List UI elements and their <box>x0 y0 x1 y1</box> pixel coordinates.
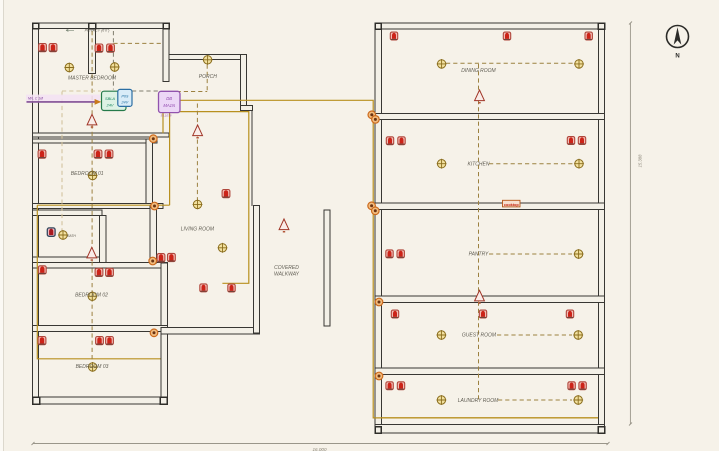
svg-text:LIVING ROOM: LIVING ROOM <box>181 227 215 233</box>
svg-text:DINING ROOM: DINING ROOM <box>461 68 496 74</box>
svg-text:24V: 24V <box>106 103 114 108</box>
svg-text:15.388: 15.388 <box>638 154 643 167</box>
svg-text:BATH: BATH <box>67 234 76 238</box>
svg-text:PRIVACY (6'0"): PRIVACY (6'0") <box>85 29 110 33</box>
svg-text:24V: 24V <box>120 100 128 105</box>
svg-text:16.000: 16.000 <box>312 447 326 451</box>
svg-text:COVERED: COVERED <box>274 265 299 271</box>
svg-text:KITCHEN: KITCHEN <box>468 162 490 168</box>
svg-text:GUEST ROOM: GUEST ROOM <box>462 333 497 339</box>
svg-text:BEDROOM 03: BEDROOM 03 <box>76 364 109 370</box>
svg-text:MA1N: MA1N <box>163 103 176 108</box>
svg-text:BEDROOM 02: BEDROOM 02 <box>75 293 108 299</box>
svg-text:cooktop: cooktop <box>504 203 519 207</box>
svg-text:MASTER BEDROOM: MASTER BEDROOM <box>68 76 117 82</box>
svg-text:P09: P09 <box>121 94 129 99</box>
svg-text:M/L C 1Ø: M/L C 1Ø <box>28 97 43 101</box>
svg-text:5.L1078: 5.L1078 <box>161 114 172 118</box>
svg-text:PANTRY: PANTRY <box>469 251 489 257</box>
svg-text:DB: DB <box>166 96 172 101</box>
svg-text:BEDROOM 01: BEDROOM 01 <box>71 171 104 177</box>
svg-text:WALKWAY: WALKWAY <box>274 272 300 278</box>
svg-text:SBLA: SBLA <box>105 96 115 101</box>
svg-text:N: N <box>675 54 679 60</box>
svg-text:PORCH: PORCH <box>199 74 217 80</box>
svg-text:LAUNDRY ROOM: LAUNDRY ROOM <box>458 398 499 404</box>
